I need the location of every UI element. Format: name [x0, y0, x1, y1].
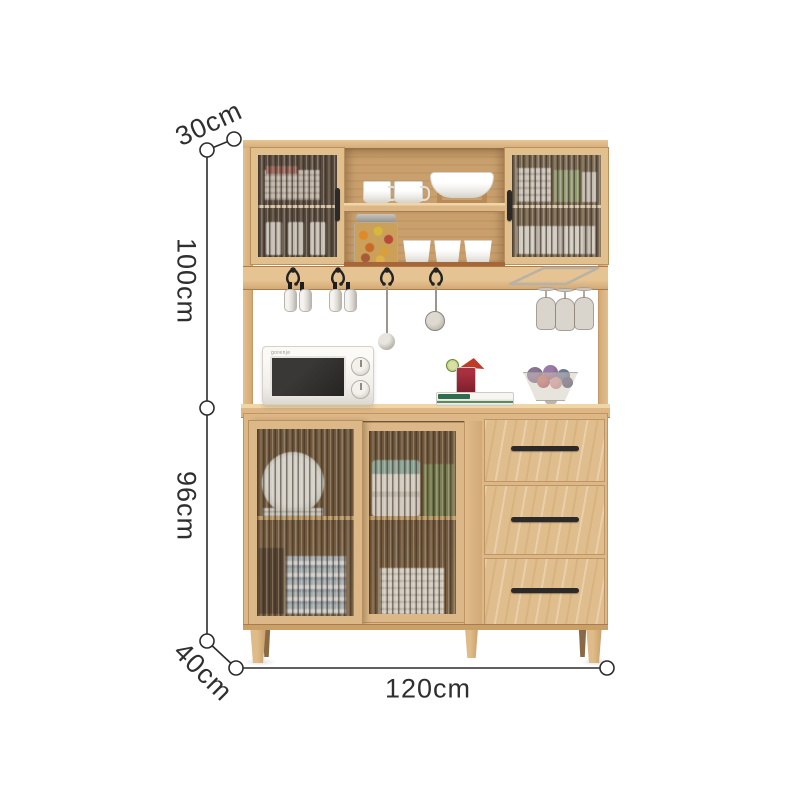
sliding-glass-door-right — [361, 423, 464, 622]
drawer-handle — [511, 446, 579, 451]
fruit-bowl-foot — [545, 400, 557, 404]
dimension-label-width: 120cm — [385, 674, 471, 705]
ladle-handle — [386, 287, 388, 335]
cocktail-glass — [456, 367, 476, 394]
mug — [363, 181, 391, 203]
microwave-dial — [351, 380, 370, 399]
upper-left-glass-door — [251, 148, 344, 264]
dimension-label-top-depth: 30cm — [171, 95, 248, 153]
cabinet-leg-back — [578, 630, 587, 657]
skimmer-handle — [435, 287, 437, 313]
white-cup — [463, 240, 493, 264]
candy-jar — [354, 222, 398, 265]
book-label — [438, 394, 470, 399]
base-rail — [243, 624, 608, 630]
ladle-whisk — [378, 333, 395, 350]
upper-right-door-handle — [507, 190, 512, 221]
dimension-label-lower-height: 96cm — [171, 471, 202, 541]
middle-shelf-board — [344, 203, 505, 212]
drawer-handle — [511, 517, 579, 522]
hanging-towel — [344, 289, 357, 312]
white-cup — [433, 240, 462, 264]
mug — [394, 181, 423, 203]
microwave-door — [270, 356, 346, 398]
candy-jar-lid — [356, 214, 396, 222]
hanging-towel — [329, 289, 342, 312]
upper-left-door-handle — [335, 188, 340, 221]
sliding-glass-door-left — [249, 421, 362, 624]
dimension-label-base-depth: 40cm — [167, 636, 238, 707]
skimmer-disc — [425, 311, 445, 331]
cabinet-leg — [464, 630, 479, 658]
dimension-label-upper-height: 100cm — [171, 238, 202, 324]
product-image: gorenje — [0, 0, 800, 800]
drawer-handle — [511, 588, 579, 593]
hanging-towel — [299, 289, 312, 312]
microwave: gorenje — [262, 346, 374, 405]
serving-bowl — [430, 172, 494, 198]
mug-handle — [420, 186, 430, 201]
fruit-bowl — [523, 372, 578, 401]
hanging-towel — [284, 289, 297, 312]
upper-right-glass-door — [505, 148, 608, 264]
white-cup — [402, 240, 432, 264]
book-stripe — [437, 401, 513, 403]
microwave-dial — [351, 357, 370, 376]
lower-cabinet-stile — [464, 421, 482, 624]
